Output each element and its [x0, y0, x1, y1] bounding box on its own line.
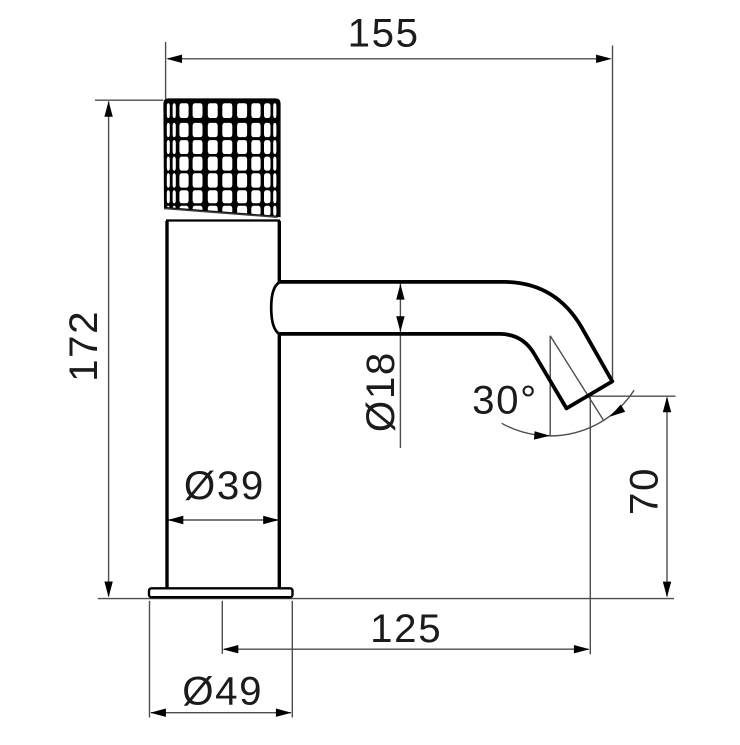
svg-text:Ø18: Ø18: [358, 351, 403, 432]
svg-text:70: 70: [622, 467, 667, 515]
svg-text:155: 155: [348, 10, 420, 55]
svg-text:125: 125: [370, 606, 442, 651]
svg-text:30°: 30°: [472, 377, 538, 422]
svg-text:Ø39: Ø39: [184, 463, 265, 508]
svg-text:Ø49: Ø49: [182, 668, 263, 713]
svg-text:172: 172: [61, 310, 106, 382]
